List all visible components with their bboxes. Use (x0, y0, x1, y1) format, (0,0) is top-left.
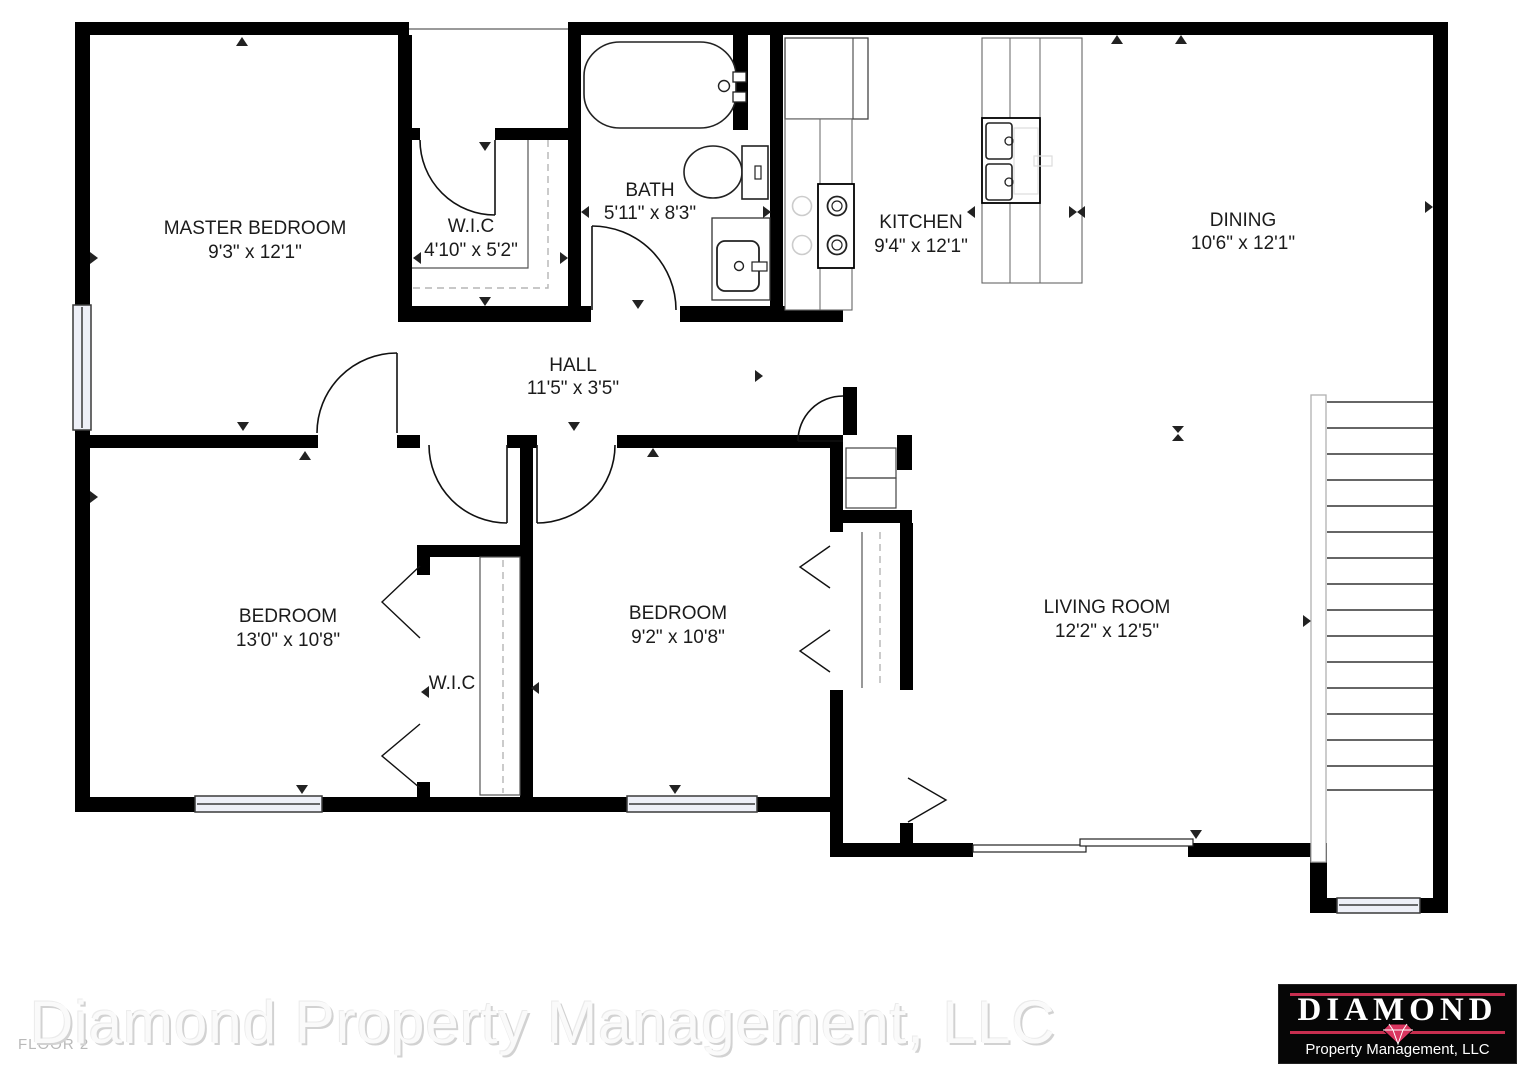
door-bedroom-1 (429, 445, 507, 523)
marker-down (568, 422, 580, 431)
marker-down (632, 300, 644, 309)
wall-segment (398, 306, 591, 322)
marker-up (236, 37, 248, 46)
room-label-hall: HALL (549, 355, 597, 376)
room-dims-hall: 11'5" x 3'5" (527, 378, 619, 399)
sliding-door-panel (1080, 839, 1193, 846)
wall-segment (417, 545, 533, 557)
marker-up (647, 448, 659, 457)
floorplan-image: MASTER BEDROOM 9'3" x 12'1" W.I.C 4'10" … (0, 0, 1527, 1080)
floorplan-drawing: MASTER BEDROOM 9'3" x 12'1" W.I.C 4'10" … (0, 0, 1527, 960)
marker-left (581, 206, 589, 218)
marker-up (1175, 35, 1187, 44)
wall-segment (398, 35, 412, 322)
room-label-wic-master: W.I.C (448, 216, 494, 237)
marker-up (479, 142, 491, 151)
marker-hourglass (1172, 434, 1184, 441)
marker-down (479, 297, 491, 306)
door-linen-closet (798, 396, 843, 441)
marker-right (1425, 201, 1433, 213)
wall-segment (830, 690, 843, 797)
marker-down (296, 785, 308, 794)
stair-handrail (1311, 395, 1326, 862)
kitchen-sink-basin (986, 164, 1012, 200)
toilet (684, 146, 742, 198)
marker-down (669, 785, 681, 794)
marker-right (90, 491, 98, 503)
bathtub (584, 42, 736, 128)
linen-shelf (846, 478, 896, 508)
wall-segment (417, 782, 430, 797)
room-dims-bedroom-1: 13'0" x 10'8" (236, 630, 340, 651)
marker-up (1111, 35, 1123, 44)
room-label-master-bedroom: MASTER BEDROOM (164, 218, 347, 239)
kitchen-fixtures (785, 38, 1082, 310)
toilet-flush (755, 166, 761, 179)
sliding-door (973, 839, 1193, 852)
room-label-bedroom-2: BEDROOM (629, 603, 727, 624)
marker-down (1190, 830, 1202, 839)
marker-up (299, 451, 311, 460)
bifold-door (800, 546, 830, 588)
bifold-door (800, 630, 830, 672)
marker-right (90, 252, 98, 264)
tub-fitting (733, 92, 746, 102)
wall-segment (1433, 22, 1448, 913)
bath-fixtures (584, 42, 770, 300)
wall-segment (495, 128, 568, 140)
sliding-door-panel (973, 845, 1086, 852)
wall-segment (900, 523, 913, 690)
marker-down (237, 422, 249, 431)
wall-segment (843, 387, 857, 435)
bifold-door (382, 724, 420, 788)
wall-segment (830, 843, 973, 857)
room-label-bath: BATH (625, 180, 674, 201)
tub-fitting (733, 72, 746, 82)
logo-subtitle: Property Management, LLC (1279, 1041, 1516, 1058)
wall-segment (568, 35, 581, 322)
room-label-bedroom-1: BEDROOM (239, 606, 337, 627)
room-dims-living-room: 12'2" x 12'5" (1055, 621, 1159, 642)
marker-right (763, 206, 771, 218)
entry-door (908, 778, 946, 822)
room-dims-kitchen: 9'4" x 12'1" (874, 236, 968, 257)
room-label-kitchen: KITCHEN (879, 212, 962, 233)
watermark-text: Diamond Property Management, LLC (30, 988, 1056, 1057)
wall-segment (568, 22, 1448, 35)
sink-handle (752, 262, 767, 271)
refrigerator (785, 38, 868, 119)
closet-shelf-outline (480, 557, 520, 795)
marker-hourglass (1172, 426, 1184, 433)
marker-right (755, 370, 763, 382)
wall-segment (1188, 843, 1327, 857)
room-label-living-room: LIVING ROOM (1044, 597, 1171, 618)
marker-right (560, 252, 568, 264)
linen-shelf (846, 448, 896, 478)
wall-segment (417, 545, 430, 575)
door-bedroom-2 (537, 445, 615, 523)
room-dims-bedroom-2: 9'2" x 10'8" (631, 627, 725, 648)
room-dims-dining: 10'6" x 12'1" (1191, 233, 1295, 254)
door-bath (592, 226, 676, 310)
wall-segment (75, 22, 409, 35)
wall-segment (397, 435, 420, 448)
kitchen-sink-basin (986, 123, 1012, 159)
wall-segment (897, 435, 912, 470)
marker-right (1303, 615, 1311, 627)
room-dims-master-bedroom: 9'3" x 12'1" (208, 242, 302, 263)
room-dims-bath: 5'11" x 8'3" (604, 203, 696, 224)
room-label-wic-2: W.I.C (429, 673, 475, 694)
wall-segment (770, 22, 783, 322)
company-logo: DIAMOND Property Management, LLC (1278, 984, 1517, 1064)
room-label-dining: DINING (1210, 210, 1277, 231)
marker-left (967, 206, 975, 218)
wall-segment (412, 128, 420, 140)
wall-segment (520, 435, 533, 808)
door-master-wic (420, 140, 495, 215)
door-master-bedroom (317, 353, 397, 433)
marker-left (413, 252, 421, 264)
staircase (1311, 395, 1433, 862)
wall-segment (830, 510, 912, 523)
wall-segment (90, 435, 318, 448)
wall-segment (900, 823, 913, 843)
room-dims-wic-master: 4'10" x 5'2" (424, 240, 518, 261)
bifold-door (382, 566, 420, 638)
